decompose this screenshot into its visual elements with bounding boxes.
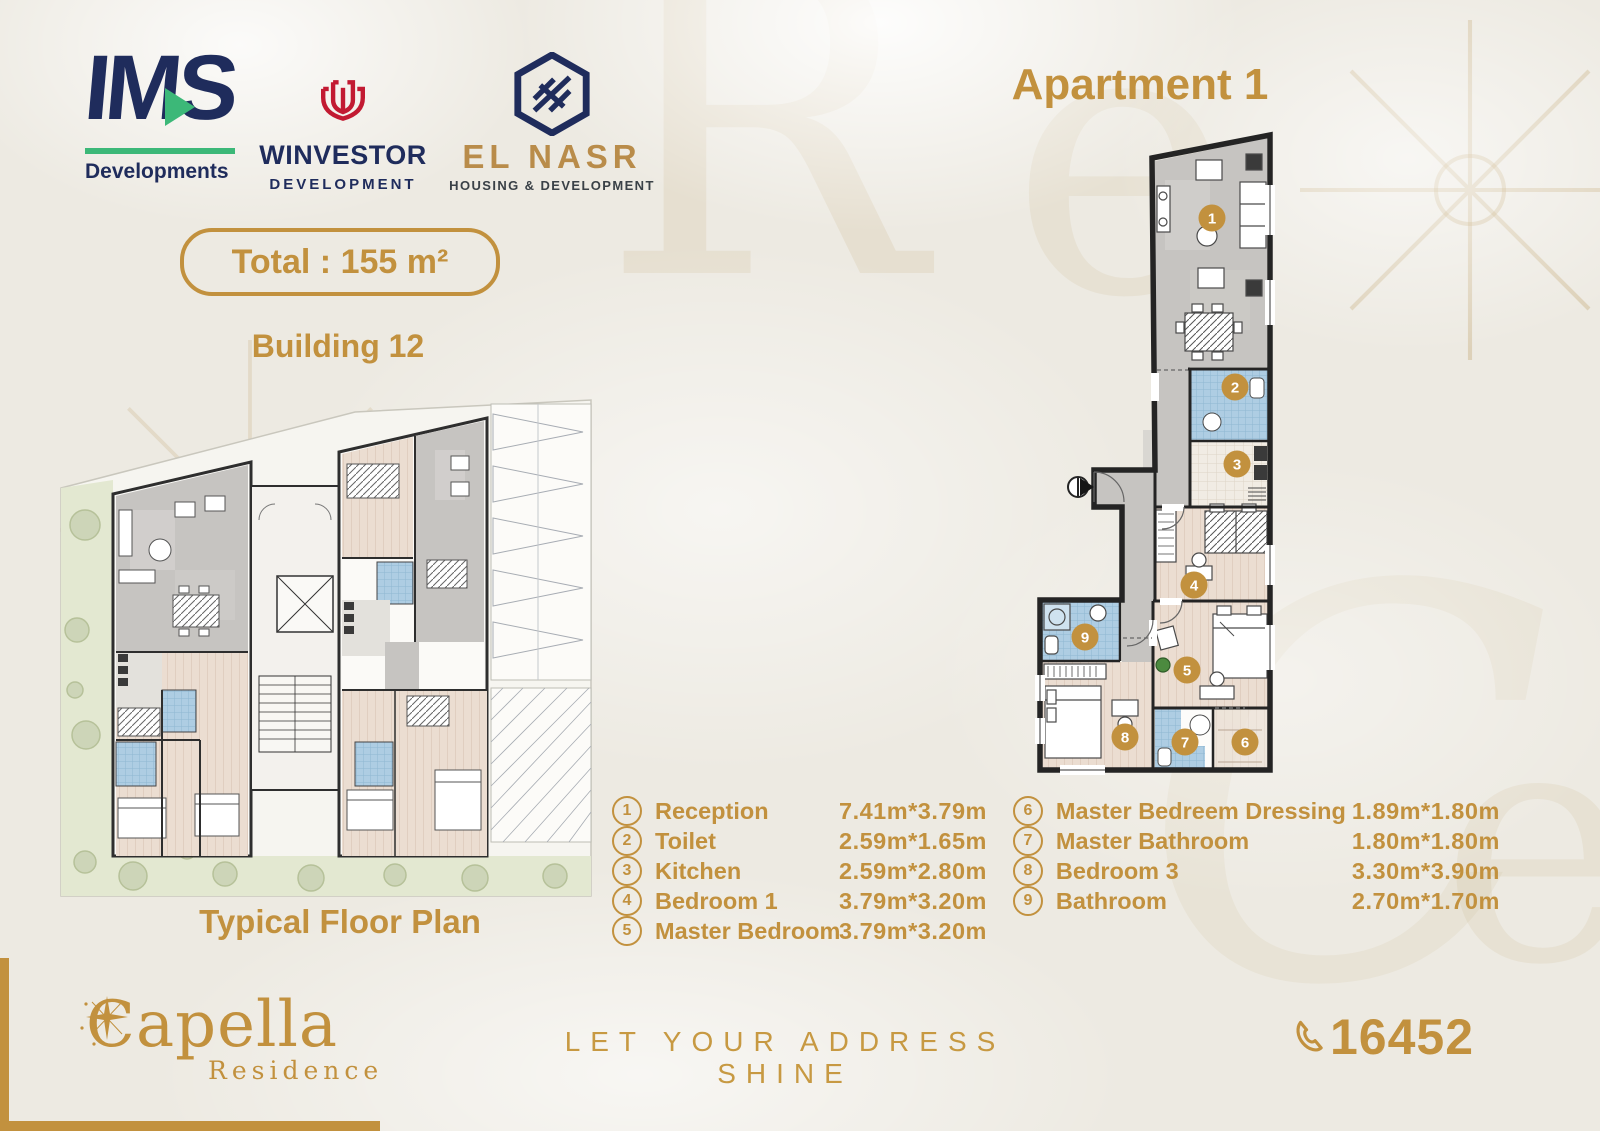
legend-number: 9 [1013,886,1043,916]
svg-text:4: 4 [1190,578,1199,595]
legend-item: 8Bedroom 33.30m*3.90m [1013,858,1500,884]
svg-text:8: 8 [1121,730,1129,747]
gold-frame-vertical [0,958,9,1131]
plan-marker-1: 1 [1199,205,1226,232]
capella-logo: Capella Residence [86,988,386,1098]
room-legend: 1Reception7.41m*3.79m2Toilet2.59m*1.65m3… [612,798,1500,948]
elnasr-hexagon-icon [512,52,592,136]
legend-room-label: Master Bedreem Dressing [1056,798,1352,825]
legend-room-label: Master Bathroom [1056,828,1352,855]
legend-item: 2Toilet2.59m*1.65m [612,828,987,854]
svg-text:1: 1 [1208,211,1216,228]
ims-subtitle: Developments [85,160,229,184]
elnasr-wordmark: EL NASR [446,138,658,176]
plan-marker-5: 5 [1174,657,1201,684]
svg-text:2: 2 [1231,380,1239,397]
plan-marker-2: 2 [1222,374,1249,401]
legend-item: 6Master Bedreem Dressing1.89m*1.80m [1013,798,1500,824]
svg-text:6: 6 [1241,735,1249,752]
legend-item: 7Master Bathroom1.80m*1.80m [1013,828,1500,854]
legend-item: 9Bathroom2.70m*1.70m [1013,888,1500,914]
legend-room-dimension: 3.79m*3.20m [839,918,987,945]
legend-number: 1 [612,796,642,826]
canopy [491,404,591,842]
legend-room-dimension: 1.80m*1.80m [1352,828,1500,855]
legend-item: 3Kitchen2.59m*2.80m [612,858,987,884]
plan-marker-7: 7 [1172,729,1199,756]
legend-room-label: Kitchen [655,858,839,885]
svg-text:5: 5 [1183,663,1191,680]
legend-room-label: Bathroom [1056,888,1352,915]
plan-marker-6: 6 [1232,729,1259,756]
capella-subtitle: Residence [208,1056,383,1085]
svg-text:9: 9 [1081,630,1089,647]
legend-room-dimension: 3.30m*3.90m [1352,858,1500,885]
ims-underline [85,148,235,154]
legend-room-label: Reception [655,798,839,825]
legend-number: 3 [612,856,642,886]
winvestor-subtitle: DEVELOPMENT [258,176,428,193]
phone-icon [1294,1020,1324,1054]
typical-floor-plan [55,390,600,910]
elnasr-subtitle: HOUSING & DEVELOPMENT [446,178,658,193]
right-unit [339,418,487,856]
legend-room-dimension: 7.41m*3.79m [839,798,987,825]
svg-text:3: 3 [1233,457,1241,474]
left-unit [113,462,251,856]
legend-room-label: Toilet [655,828,839,855]
tagline: LET YOUR ADDRESS SHINE [520,1026,1050,1090]
logo-ims: IMS Developments [85,52,255,197]
plan-marker-3: 3 [1224,451,1251,478]
legend-number: 2 [612,826,642,856]
logo-elnasr: EL NASR HOUSING & DEVELOPMENT [452,52,652,197]
legend-room-dimension: 2.59m*1.65m [839,828,987,855]
legend-item: 4Bedroom 13.79m*3.20m [612,888,987,914]
winvestor-crown-icon [310,64,376,138]
lobby [251,486,339,790]
gold-frame-horizontal [0,1121,380,1131]
legend-room-label: Bedroom 3 [1056,858,1352,885]
capella-compass-icon [78,990,136,1050]
legend-room-dimension: 1.89m*1.80m [1352,798,1500,825]
plan-marker-9: 9 [1072,624,1099,651]
total-area-badge: Total : 155 m² [180,228,500,296]
legend-room-label: Bedroom 1 [655,888,839,915]
winvestor-wordmark: WINVESTOR [258,140,428,171]
legend-column-2: 6Master Bedreem Dressing1.89m*1.80m7Mast… [1013,798,1500,948]
legend-item: 5Master Bedroom3.79m*3.20m [612,918,987,944]
svg-text:7: 7 [1181,735,1189,752]
legend-room-dimension: 2.70m*1.70m [1352,888,1500,915]
phone-block: 16452 [1294,1008,1474,1066]
ims-triangle-icon [165,88,195,126]
phone-number: 16452 [1330,1008,1474,1066]
legend-number: 7 [1013,826,1043,856]
legend-room-dimension: 2.59m*2.80m [839,858,987,885]
apartment-plan: 123456789 [1000,130,1340,790]
legend-room-label: Master Bedroom [655,918,839,945]
plan-marker-4: 4 [1181,572,1208,599]
legend-column-1: 1Reception7.41m*3.79m2Toilet2.59m*1.65m3… [612,798,987,948]
brochure-page: R e C a e IMS Developments WINVESTOR DEV… [0,0,1600,1131]
watermark-compass-star [1300,20,1600,360]
building-label: Building 12 [180,328,496,365]
legend-number: 6 [1013,796,1043,826]
entrance-icon [1068,477,1094,497]
ims-wordmark: IMS [80,36,238,141]
legend-item: 1Reception7.41m*3.79m [612,798,987,824]
legend-room-dimension: 3.79m*3.20m [839,888,987,915]
legend-number: 5 [612,916,642,946]
apartment-title: Apartment 1 [980,60,1300,110]
legend-number: 4 [612,886,642,916]
logo-winvestor: WINVESTOR DEVELOPMENT [258,64,428,204]
legend-number: 8 [1013,856,1043,886]
plan-marker-8: 8 [1112,724,1139,751]
